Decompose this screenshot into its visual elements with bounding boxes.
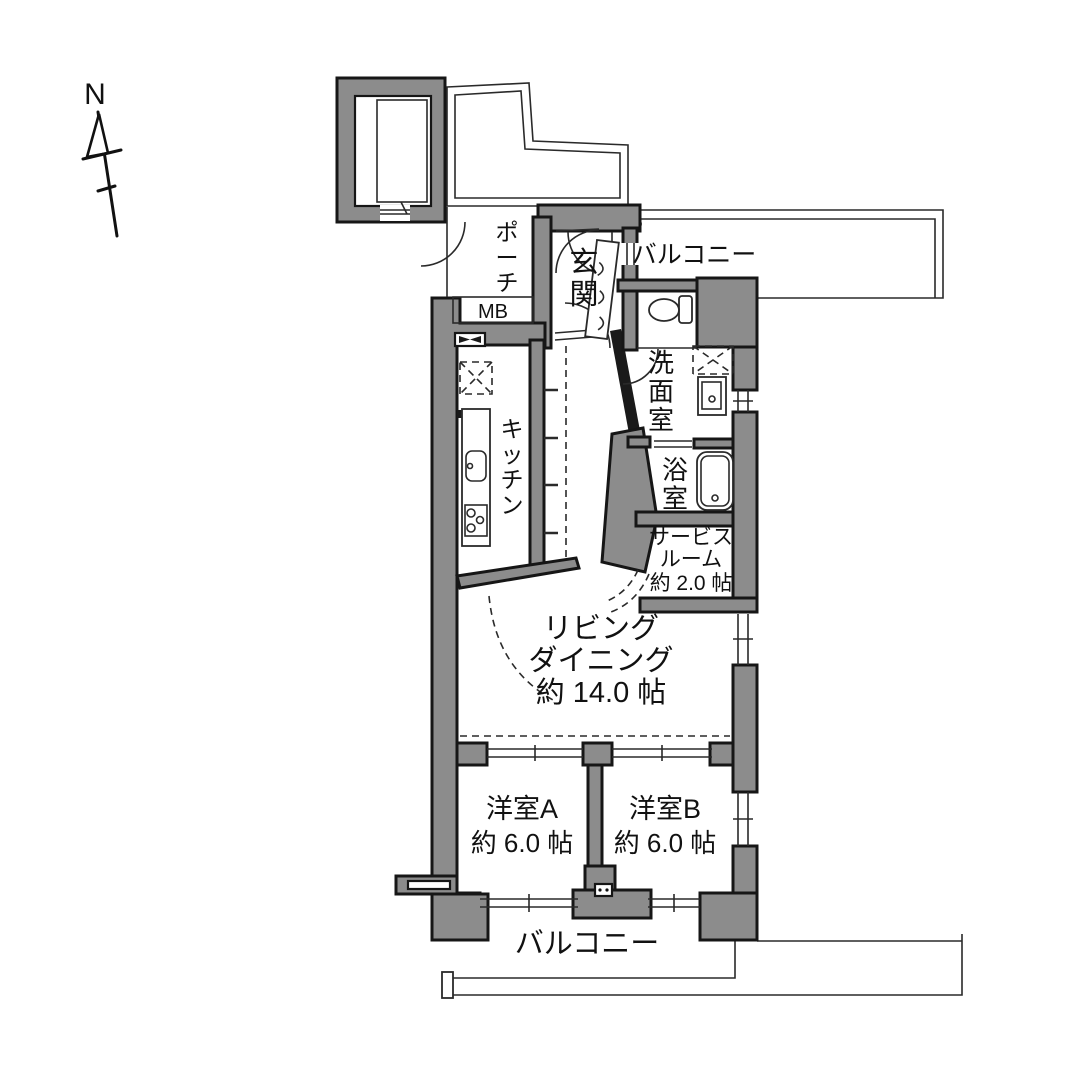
outlet-dot-2	[605, 888, 608, 891]
rooms-top-wall-right	[710, 743, 733, 765]
east-wall-seg3	[733, 665, 757, 792]
porch-label: ポーチ	[496, 219, 519, 296]
service-room-label-1: サービス	[649, 526, 733, 549]
floor-plan-canvas: N	[0, 0, 1080, 1080]
toilet-bowl-icon	[649, 299, 679, 321]
kitchen-right-wall	[530, 340, 544, 566]
outlet-dot-1	[598, 888, 601, 891]
room-b-label-2: 約 6.0 帖	[614, 828, 717, 858]
northeast-corner-wall	[697, 278, 757, 347]
living-label-3: 約 14.0 帖	[536, 676, 667, 709]
living-label-1: リビング	[543, 612, 659, 645]
service-room-bottom-wall	[640, 598, 757, 612]
toilet-top-wall	[618, 280, 700, 291]
east-wall-seg2	[733, 412, 757, 598]
elevator-cabin-area	[355, 96, 431, 206]
service-room-label-3: 約 2.0 帖	[650, 572, 733, 595]
bath-bottom-wall	[636, 512, 733, 526]
washroom-bath-wall-left	[628, 437, 650, 447]
meter-box-label: MB	[478, 301, 508, 323]
kitchen-label: キッチン	[501, 416, 524, 518]
elevator	[337, 78, 445, 222]
room-a-label-2: 約 6.0 帖	[471, 828, 574, 858]
service-room-label-2: ルーム	[660, 548, 722, 571]
floor-plan-drawing: N	[0, 0, 1080, 1080]
lower-balcony-rail-post	[442, 972, 453, 998]
compass-label: N	[84, 78, 106, 111]
toilet-tank-icon	[679, 296, 692, 323]
entrance-label: 玄関	[569, 246, 598, 311]
living-label-2: ダイニング	[528, 644, 673, 677]
bathroom-label: 浴室	[662, 455, 688, 514]
room-a-label-1: 洋室A	[486, 794, 558, 824]
southwest-pillar	[432, 894, 488, 940]
washroom-label: 洗面室	[648, 348, 674, 435]
toilet	[649, 296, 692, 323]
southeast-pillar	[700, 893, 757, 940]
rooms-top-wall-center	[583, 743, 612, 765]
east-wall-seg1	[733, 347, 757, 390]
rooms-top-wall-left	[457, 743, 487, 765]
washroom-bath-wall-right	[694, 439, 733, 448]
lower-balcony-label: バルコニー	[515, 928, 659, 960]
bathroom-fixtures	[697, 452, 733, 510]
outlet-box	[595, 884, 612, 896]
southwest-vent-slot	[408, 881, 450, 889]
room-b-label-1: 洋室B	[629, 794, 701, 824]
upper-balcony-label: バルコニー	[632, 241, 757, 269]
elevator-door-gap	[380, 205, 410, 221]
